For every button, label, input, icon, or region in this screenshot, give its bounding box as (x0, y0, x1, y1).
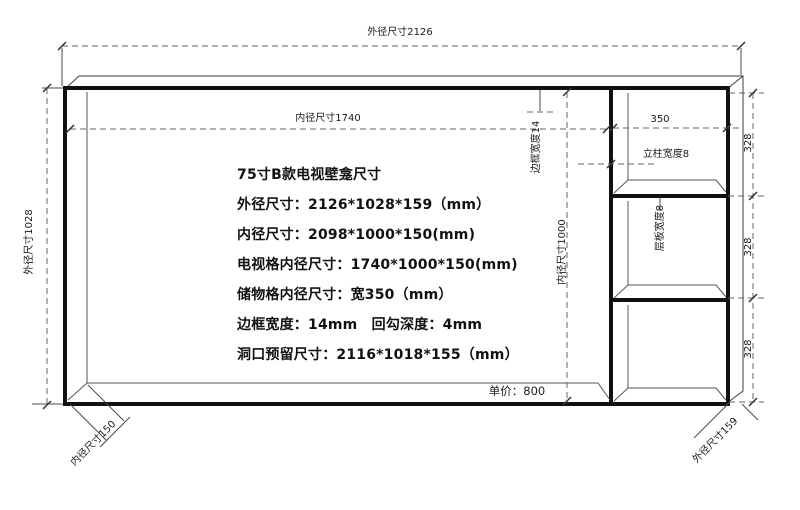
dim-storage-width-label: 350 (650, 115, 669, 125)
dim-outer-width-label: 外径尺寸2126 (367, 28, 432, 38)
spec-outer-size: 外径尺寸：2126*1028*159（mm） (237, 190, 537, 220)
drawing-canvas: 外径尺寸2126 内径尺寸1740 外径尺寸1028 边框宽度14 内径尺寸10… (0, 0, 800, 510)
dim-outer-height-label: 外径尺寸1028 (25, 209, 35, 274)
spec-inner-size: 内径尺寸：2098*1000*150(mm) (237, 220, 537, 250)
spec-tv-cell-size: 电视格内径尺寸：1740*1000*150(mm) (237, 250, 537, 280)
dim-cell-height-2-label: 328 (744, 237, 754, 256)
dim-cell-height-1-label: 328 (744, 133, 754, 152)
spec-title: 75寸B款电视壁龛尺寸 (237, 160, 537, 190)
dim-cell-height-3-label: 328 (744, 339, 754, 358)
dim-inner-height-label: 内径尺寸1000 (558, 219, 568, 284)
spec-text-block: 75寸B款电视壁龛尺寸 外径尺寸：2126*1028*159（mm） 内径尺寸：… (237, 160, 537, 370)
spec-opening-size: 洞口预留尺寸：2116*1018*155（mm） (237, 340, 537, 370)
dim-column-width-label: 立柱宽度8 (643, 150, 689, 160)
spec-storage-cell-size: 储物格内径尺寸：宽350（mm） (237, 280, 537, 310)
storage-cell-insets (614, 93, 726, 401)
dim-inner-width-label: 内径尺寸1740 (295, 114, 360, 124)
price-label: 单价：800 (489, 383, 545, 399)
spec-frame-and-groove: 边框宽度：14mm 回勾深度：4mm (237, 310, 537, 340)
dim-shelf-width-label: 层板宽度8 (656, 205, 666, 251)
